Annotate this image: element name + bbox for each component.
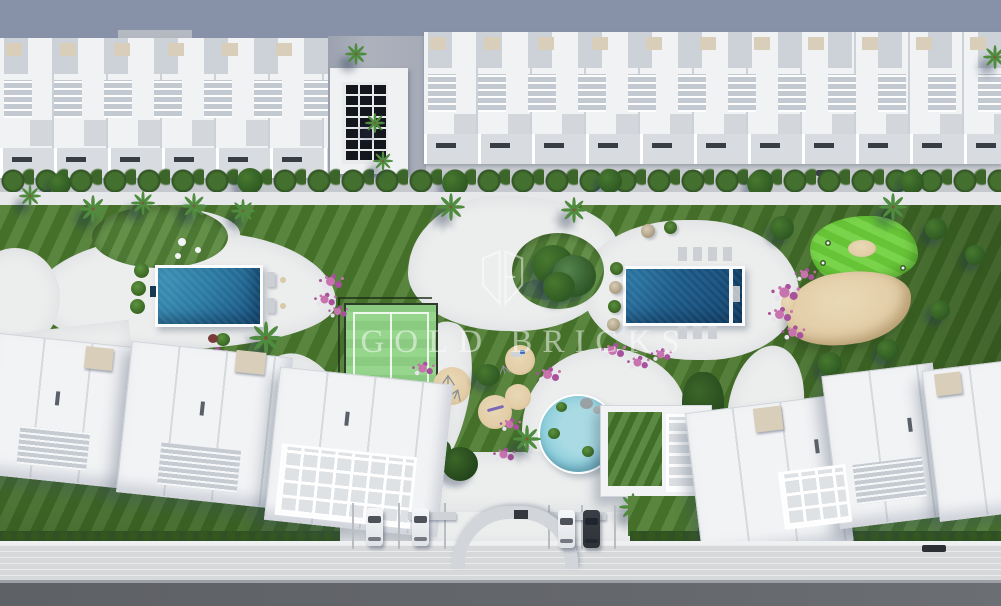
shrub xyxy=(216,333,230,346)
flower-bed xyxy=(326,277,335,286)
roof-pergola-grid xyxy=(778,464,853,530)
watermark-logo-icon xyxy=(478,247,527,307)
palm-tree-icon xyxy=(982,44,1001,70)
left-pool xyxy=(155,265,263,327)
sun-lounger xyxy=(266,272,275,287)
flower-bed xyxy=(543,370,552,379)
sun-lounger-row xyxy=(678,247,736,261)
poolside-bush xyxy=(134,263,149,278)
pool-plant xyxy=(582,446,594,457)
sun-lounger xyxy=(266,298,275,313)
parked-car-white xyxy=(366,508,383,546)
golf-hole xyxy=(900,265,906,271)
palm-tree-icon xyxy=(130,190,156,216)
planter-pot xyxy=(641,224,655,238)
parked-car-white xyxy=(412,508,429,546)
poolside-bush xyxy=(131,281,146,296)
street-tree xyxy=(598,169,622,193)
red-shrub xyxy=(208,334,218,343)
building-shadow xyxy=(556,0,632,34)
community-green-roof xyxy=(608,412,662,486)
roof-bulkheads xyxy=(430,37,1001,50)
island-seating xyxy=(178,238,186,246)
flower-bed xyxy=(320,295,328,303)
terrace xyxy=(852,457,926,505)
golf-hole xyxy=(825,240,831,246)
pool-rock xyxy=(580,398,593,409)
palm-tree-icon xyxy=(560,196,588,224)
palm-tree-icon xyxy=(344,42,368,66)
terrace-railings xyxy=(0,80,330,118)
garden-tree xyxy=(930,300,950,320)
roof-bulkhead xyxy=(84,346,114,371)
palm-tree-icon xyxy=(436,192,466,222)
building-shadow xyxy=(0,0,66,40)
palm-tree-icon xyxy=(878,192,908,222)
roof-bulkhead xyxy=(234,350,266,375)
poolside-bush xyxy=(130,299,145,314)
palm-tree-icon xyxy=(230,198,256,224)
planter-pot xyxy=(609,281,622,294)
planter-pot xyxy=(608,300,621,313)
building-shadow xyxy=(118,0,192,30)
pool-divider xyxy=(729,269,733,323)
site-plan-render: GOLD BRICKS xyxy=(0,0,1001,606)
palm-tree-icon xyxy=(364,112,386,134)
garden-tree xyxy=(925,218,947,240)
pool-step-box xyxy=(733,286,740,302)
terrace xyxy=(157,442,241,492)
street-tree xyxy=(900,170,924,194)
palm-tree-icon xyxy=(372,150,394,172)
front-patios xyxy=(424,134,1001,164)
facade-insets xyxy=(0,120,330,146)
flower-bed xyxy=(788,328,797,337)
townhouse-row-left xyxy=(0,38,330,178)
pool-plant xyxy=(548,428,560,439)
terrace xyxy=(17,426,91,471)
right-pool xyxy=(623,266,745,326)
palm-tree-icon xyxy=(512,424,542,454)
palm-tree-icon xyxy=(18,184,42,208)
street-tree xyxy=(237,168,263,194)
side-table xyxy=(280,303,286,309)
playground-tree xyxy=(476,364,500,386)
flower-bed xyxy=(499,450,507,458)
pool-ladder xyxy=(150,286,156,297)
flower-bed xyxy=(779,287,789,297)
terrace-railings xyxy=(424,74,1001,112)
palm-tree-icon xyxy=(180,192,208,220)
garden-tree xyxy=(770,216,794,240)
green-sand-patch xyxy=(848,240,876,257)
townhouse-row-right xyxy=(424,32,1001,164)
parked-car-white xyxy=(558,510,575,548)
flower-bed xyxy=(334,308,341,315)
road xyxy=(0,583,1001,606)
flower-bed xyxy=(775,310,784,319)
roof-bulkheads xyxy=(6,43,330,56)
building-shadow xyxy=(852,0,926,34)
pool-plant xyxy=(556,402,567,412)
bottom-right-building xyxy=(669,325,1001,566)
garden-tree xyxy=(965,245,985,265)
parked-car-dark xyxy=(583,510,600,548)
entrance-gate xyxy=(514,510,528,519)
planter-pot xyxy=(664,221,677,234)
side-table xyxy=(280,277,286,283)
center-tree xyxy=(543,272,575,302)
roof-bulkhead xyxy=(934,371,962,396)
roof-bulkhead xyxy=(753,405,784,432)
watermark-text: GOLD BRICKS xyxy=(340,324,710,361)
building-shadow xyxy=(252,0,332,38)
golf-hole xyxy=(820,260,826,266)
speed-bump xyxy=(922,545,946,552)
palm-tree-icon xyxy=(78,194,108,224)
flower-bed xyxy=(801,271,809,279)
planter-pot xyxy=(610,262,623,275)
